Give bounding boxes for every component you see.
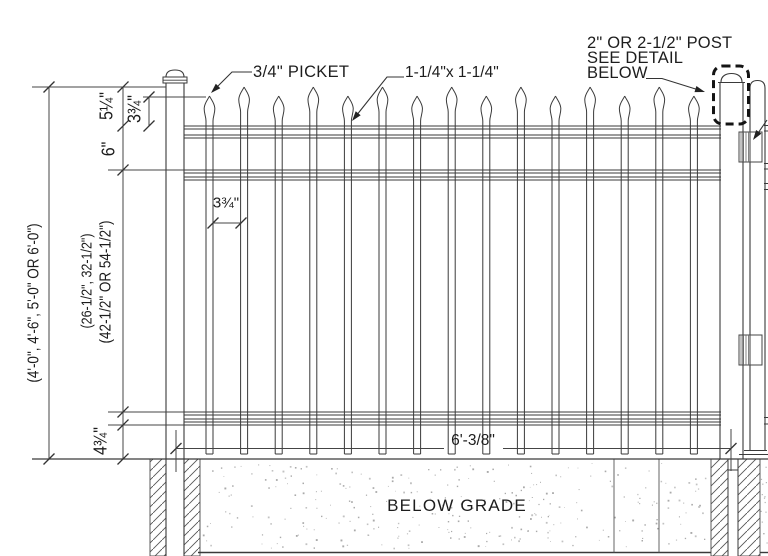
rail-to-grade-dimension: 4¾" (91, 427, 112, 455)
picket-callout-label: 3/4" PICKET (253, 63, 349, 82)
panel-width-dimension: 6'-3/8" (451, 432, 495, 450)
rails (184, 126, 768, 426)
callout-leaders (211, 72, 767, 140)
fence-elevation-drawing: 3/4" PICKET 1-1/4"x 1-1/4" 2" OR 2-1/2" … (0, 0, 768, 556)
posts (163, 70, 768, 556)
rail-to-rail-dimension: 6" (99, 142, 120, 157)
post-callout-line3: BELOW (587, 66, 732, 81)
post-callout-label: 2" OR 2-1/2" POST SEE DETAIL BELOW (587, 36, 732, 82)
picket-gap-dimension: 3¾" (213, 195, 239, 212)
dimension-lines (32, 82, 737, 473)
rail-spacing-options-b-dimension: (42-1/2" OR 54-1/2") (96, 221, 114, 344)
rail-size-callout-label: 1-1/4"x 1-1/4" (405, 64, 499, 82)
top-to-rail-dimension: 5¼" (97, 92, 118, 120)
below-grade-label: BELOW GRADE (387, 496, 527, 516)
rail-spacing-options-a-dimension: (26-1/2", 32-1/2") (79, 233, 96, 328)
fence-linework (0, 0, 768, 556)
picket-tip-to-rail-dimension: 3¾" (125, 95, 146, 123)
pickets (204, 87, 699, 454)
overall-height-dimension: (4'-0", 4'-6", 5'-0" OR 6'-0") (24, 223, 42, 382)
